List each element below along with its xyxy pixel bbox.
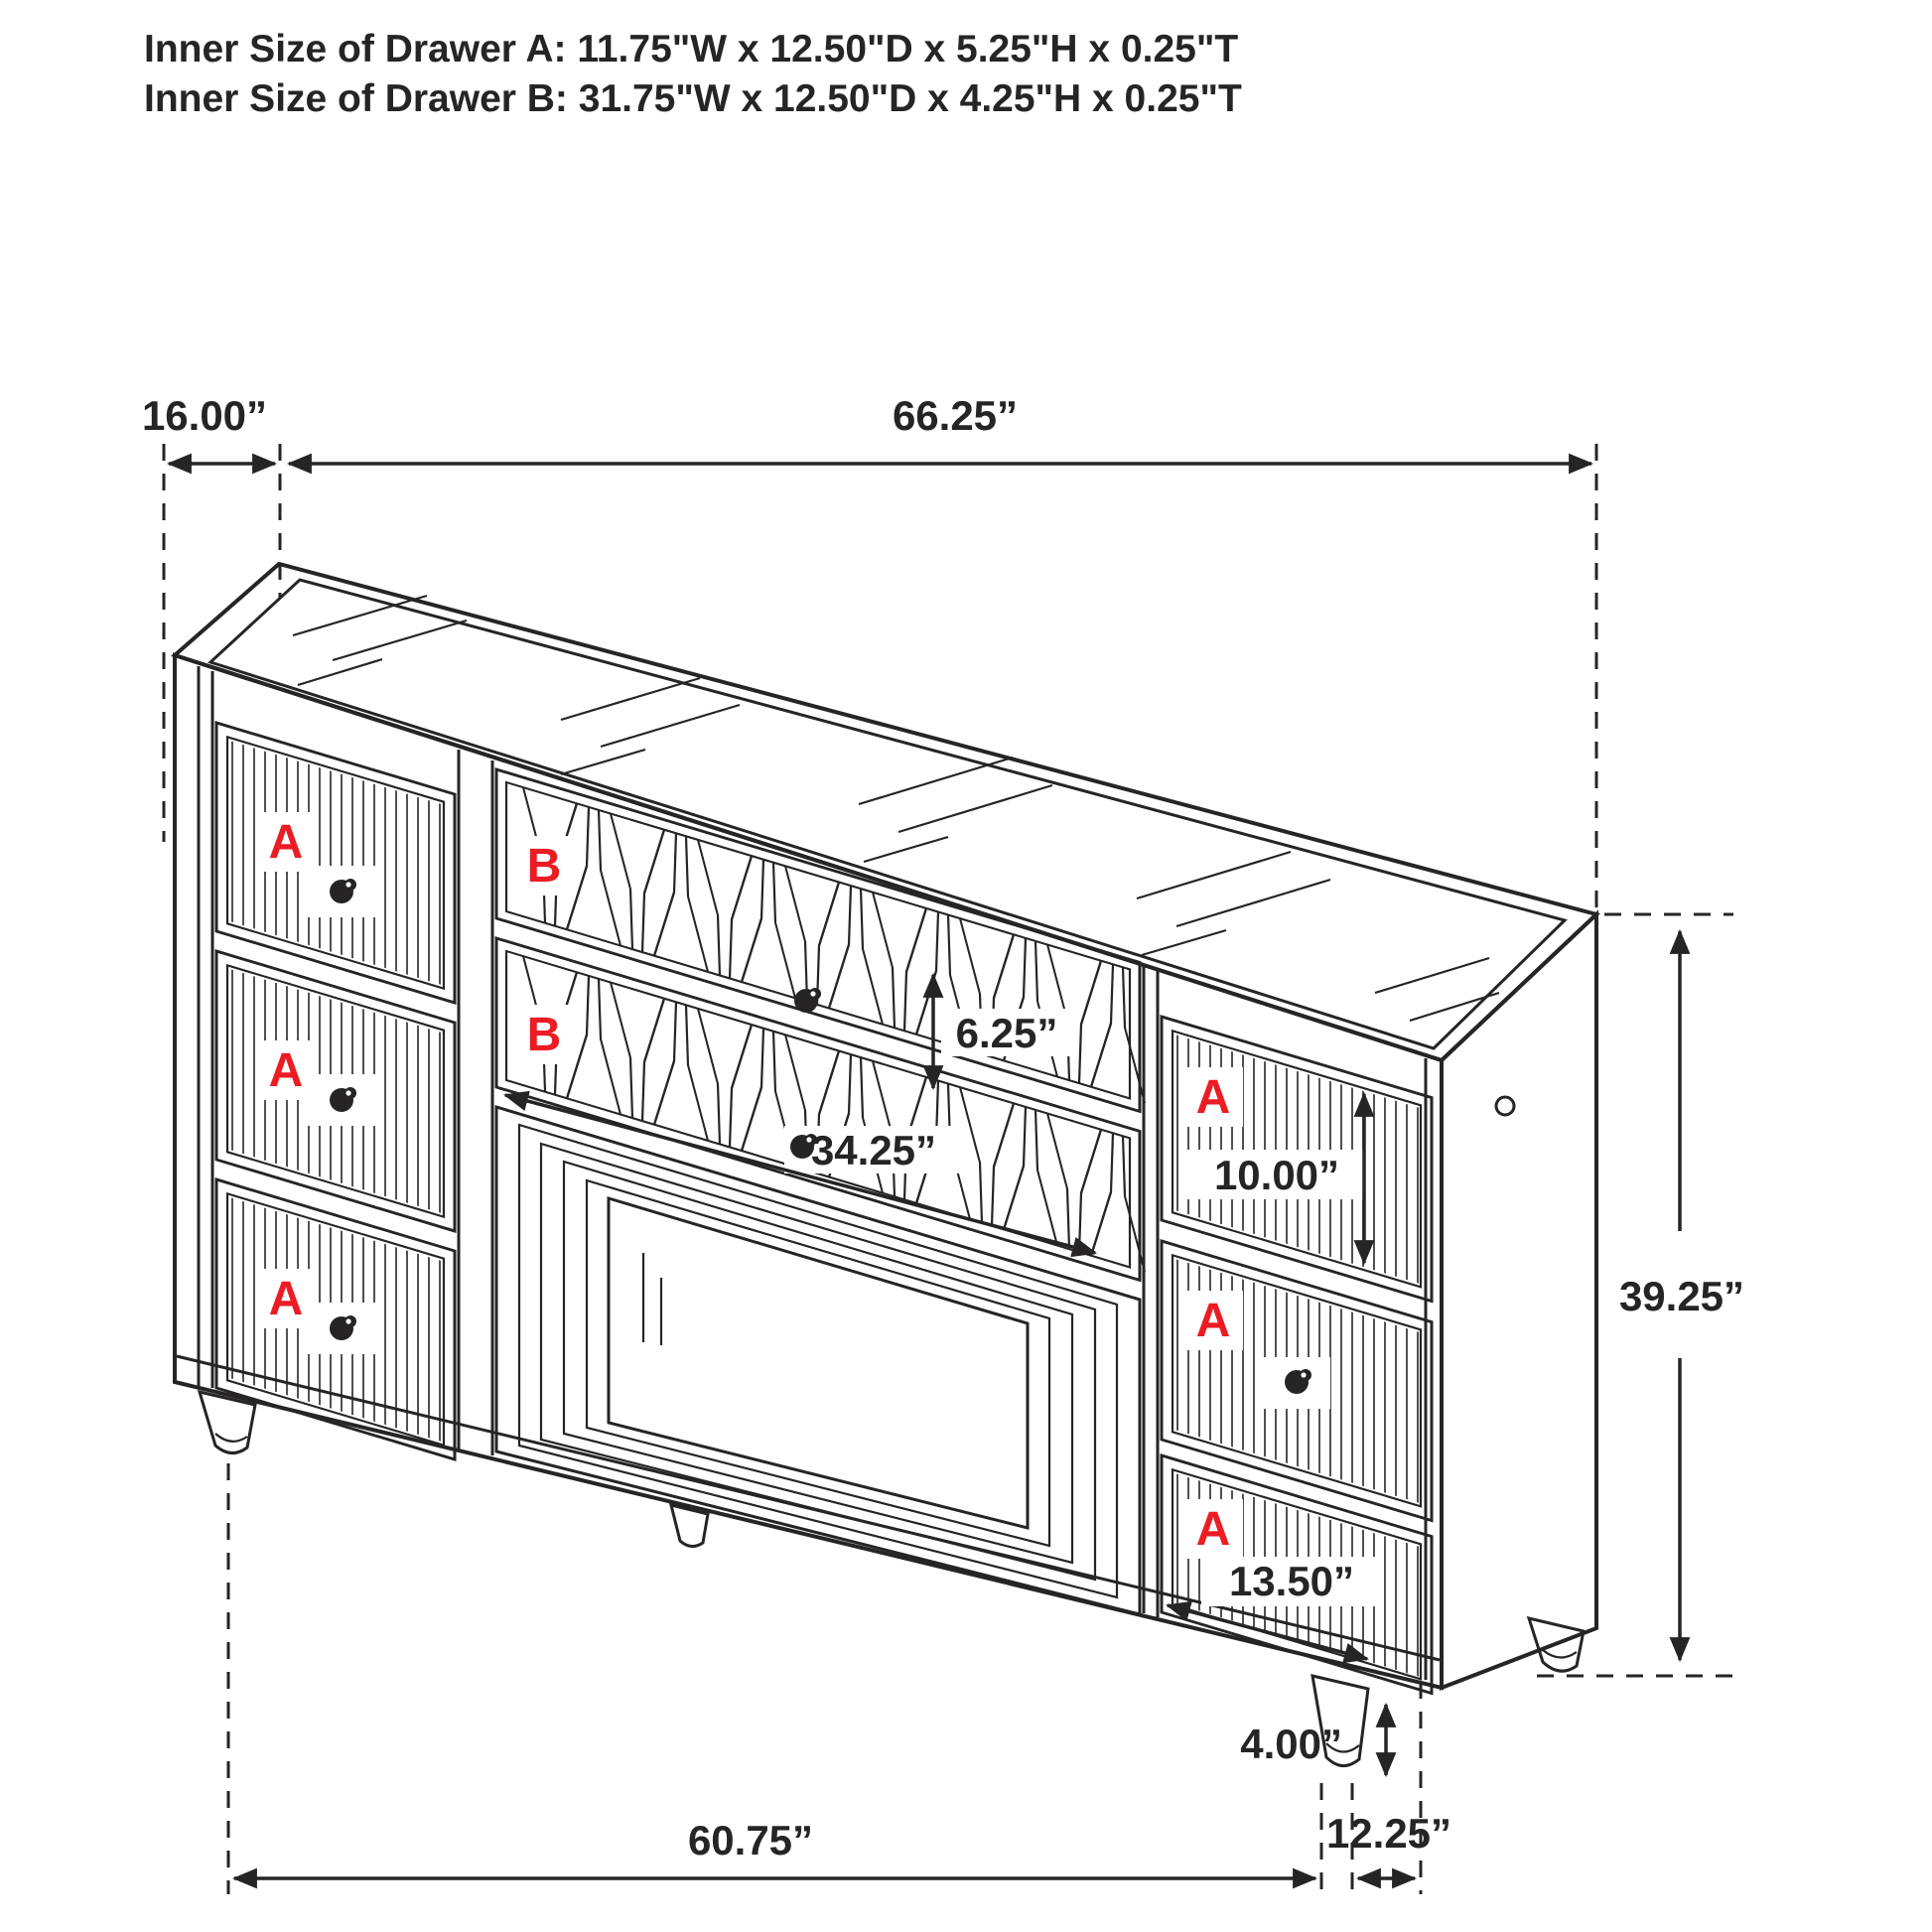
dimension-b-drawer-width: 34.25” xyxy=(505,1095,1095,1253)
top-depth-label: 16.00” xyxy=(142,392,267,439)
overall-height-label: 39.25” xyxy=(1619,1273,1744,1319)
drawer-label-a-left-1: A xyxy=(269,816,304,869)
furniture-dimension-diagram: Inner Size of Drawer A: 11.75"W x 12.50"… xyxy=(0,0,1932,1932)
glass-reflection-hatches xyxy=(293,596,1499,1021)
dimension-bottom-depth: 12.25” xyxy=(1326,1810,1451,1878)
drawer-label-b-2: B xyxy=(527,1009,562,1061)
drawer-label-a-right-3: A xyxy=(1196,1503,1231,1556)
dimension-overall-height: 39.25” xyxy=(1619,931,1744,1660)
top-width-label: 66.25” xyxy=(893,392,1018,439)
side-panel xyxy=(1442,914,1596,1688)
dimension-top-width: 66.25” xyxy=(289,392,1591,464)
top-surface xyxy=(175,564,1596,1060)
center-foot xyxy=(671,1505,708,1547)
drawer-label-a-left-3: A xyxy=(269,1273,304,1325)
drawer-b-2 xyxy=(496,938,1145,1282)
title-line-1: Inner Size of Drawer A: 11.75"W x 12.50"… xyxy=(144,28,1238,70)
bottom-depth-label: 12.25” xyxy=(1326,1810,1451,1857)
top-surface-bevel xyxy=(210,580,1565,1048)
drawer-b-1 xyxy=(496,769,1145,1113)
right-bottom-drawer-width-label: 13.50” xyxy=(1229,1558,1354,1604)
diagram-canvas: Inner Size of Drawer A: 11.75"W x 12.50"… xyxy=(0,0,1932,1932)
diagram-title: Inner Size of Drawer A: 11.75"W x 12.50"… xyxy=(144,28,1242,120)
knob-icon xyxy=(794,988,821,1013)
drawer-label-a-right-2: A xyxy=(1196,1295,1231,1347)
side-panel-hole xyxy=(1496,1097,1514,1115)
b-drawer-width-label: 34.25” xyxy=(811,1127,936,1173)
right-top-drawer-height-label: 10.00” xyxy=(1214,1152,1339,1198)
dimension-top-depth: 16.00” xyxy=(142,392,275,464)
title-line-2: Inner Size of Drawer B: 31.75"W x 12.50"… xyxy=(144,77,1242,120)
bottom-width-label: 60.75” xyxy=(688,1817,813,1863)
drawer-label-b-1: B xyxy=(527,840,562,893)
drawer-label-a-left-2: A xyxy=(269,1044,304,1097)
drawer-letters: A A A B B A A A xyxy=(269,816,1231,1556)
dimension-bottom-width: 60.75” xyxy=(234,1817,1315,1878)
b-drawer-height-label: 6.25” xyxy=(956,1010,1058,1056)
drawer-label-a-right-1: A xyxy=(1196,1071,1231,1124)
